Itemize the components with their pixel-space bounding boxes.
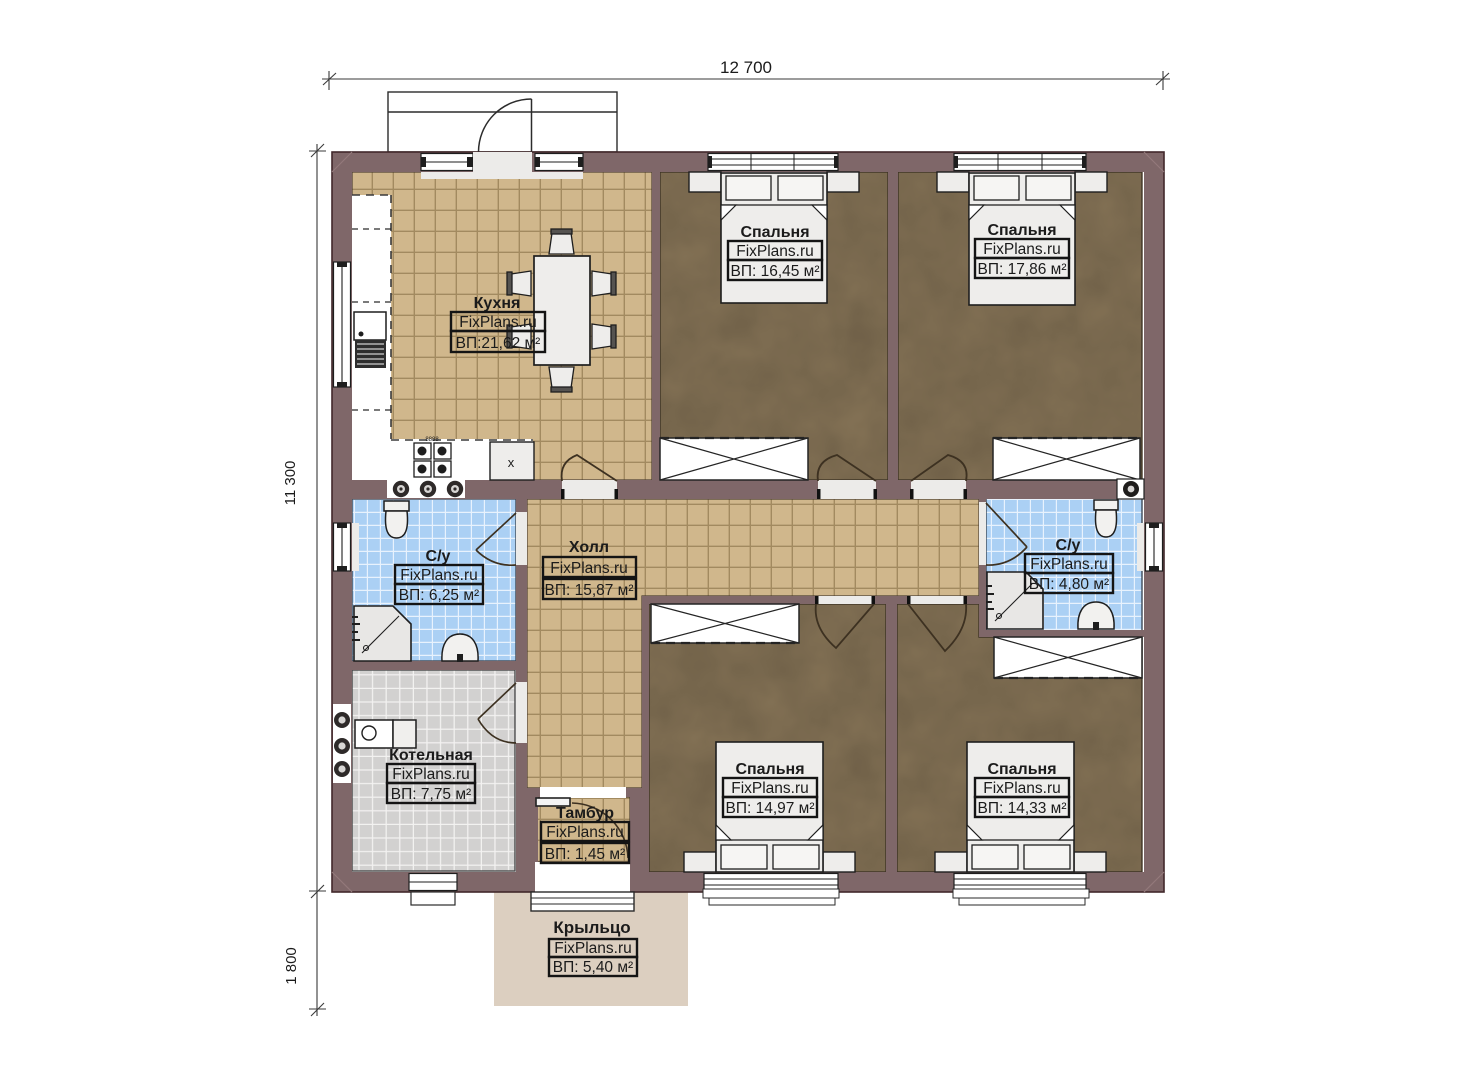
svg-text:ВП: 14,97 м²: ВП: 14,97 м² <box>725 800 814 817</box>
svg-text:Тамбур: Тамбур <box>556 805 614 822</box>
svg-text:FixPlans.ru: FixPlans.ru <box>983 241 1061 258</box>
svg-text:С/у: С/у <box>1056 537 1081 554</box>
svg-text:Спальня: Спальня <box>987 761 1056 778</box>
svg-text:ВП: 5,40 м²: ВП: 5,40 м² <box>553 959 633 976</box>
svg-text:Спальня: Спальня <box>740 224 809 241</box>
svg-text:FixPlans.ru: FixPlans.ru <box>550 560 628 577</box>
svg-text:ВП: 15,87 м²: ВП: 15,87 м² <box>544 582 633 599</box>
svg-text:ВП:21,62 м²: ВП:21,62 м² <box>456 335 541 352</box>
svg-text:12 700: 12 700 <box>720 58 772 77</box>
svg-text:x: x <box>508 455 515 470</box>
svg-text:Спальня: Спальня <box>987 222 1056 239</box>
svg-text:FixPlans.ru: FixPlans.ru <box>400 567 478 584</box>
svg-text:Кухня: Кухня <box>474 295 521 312</box>
svg-text:FixPlans.ru: FixPlans.ru <box>392 766 470 783</box>
svg-text:ВП: 4,80 м²: ВП: 4,80 м² <box>1029 576 1109 593</box>
svg-text:Котельная: Котельная <box>389 747 473 764</box>
svg-text:FixPlans.ru: FixPlans.ru <box>983 780 1061 797</box>
svg-text:FixPlans.ru: FixPlans.ru <box>554 940 632 957</box>
svg-text:ВП: 6,25 м²: ВП: 6,25 м² <box>399 587 479 604</box>
svg-text:Крыльцо: Крыльцо <box>553 918 630 937</box>
svg-text:Холл: Холл <box>569 539 609 556</box>
svg-text:ВП: 17,86 м²: ВП: 17,86 м² <box>977 261 1066 278</box>
svg-text:ВП: 16,45 м²: ВП: 16,45 м² <box>730 263 819 280</box>
svg-text:С/у: С/у <box>426 548 451 565</box>
svg-text:Спальня: Спальня <box>735 761 804 778</box>
svg-text:FixPlans.ru: FixPlans.ru <box>459 314 537 331</box>
svg-text:FixPlans.ru: FixPlans.ru <box>731 780 809 797</box>
svg-text:FixPlans.ru: FixPlans.ru <box>546 824 624 841</box>
svg-text:ВП: 7,75 м²: ВП: 7,75 м² <box>391 786 471 803</box>
svg-text:ВП: 14,33 м²: ВП: 14,33 м² <box>977 800 1066 817</box>
svg-text:8888: 8888 <box>425 437 439 443</box>
svg-text:FixPlans.ru: FixPlans.ru <box>736 243 814 260</box>
svg-text:1 800: 1 800 <box>283 947 300 985</box>
svg-text:ВП: 1,45 м²: ВП: 1,45 м² <box>545 846 625 863</box>
svg-text:11 300: 11 300 <box>282 461 299 506</box>
svg-text:FixPlans.ru: FixPlans.ru <box>1030 556 1108 573</box>
